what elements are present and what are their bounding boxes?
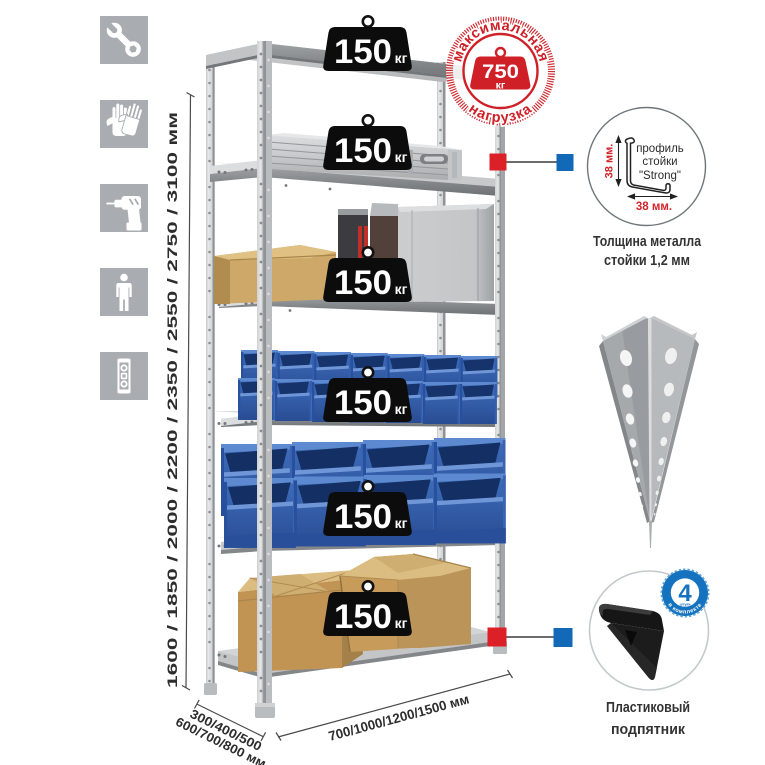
svg-text:подпятник: подпятник <box>611 721 685 738</box>
svg-text:38 мм.: 38 мм. <box>636 201 672 213</box>
svg-text:38 мм.: 38 мм. <box>604 144 616 179</box>
svg-text:профиль: профиль <box>636 143 684 155</box>
svg-text:1600 / 1850 / 2000 / 2200 / 23: 1600 / 1850 / 2000 / 2200 / 2350 / 2550 … <box>165 112 180 688</box>
svg-text:кг: кг <box>496 80 506 92</box>
svg-text:Толщина металла: Толщина металла <box>593 233 702 250</box>
svg-text:штуки: штуки <box>680 603 691 607</box>
svg-text:"Strong": "Strong" <box>639 170 681 182</box>
svg-text:Пластиковый: Пластиковый <box>606 699 690 716</box>
svg-text:стойки 1,2 мм: стойки 1,2 мм <box>604 252 690 269</box>
svg-text:стойки: стойки <box>642 156 677 168</box>
